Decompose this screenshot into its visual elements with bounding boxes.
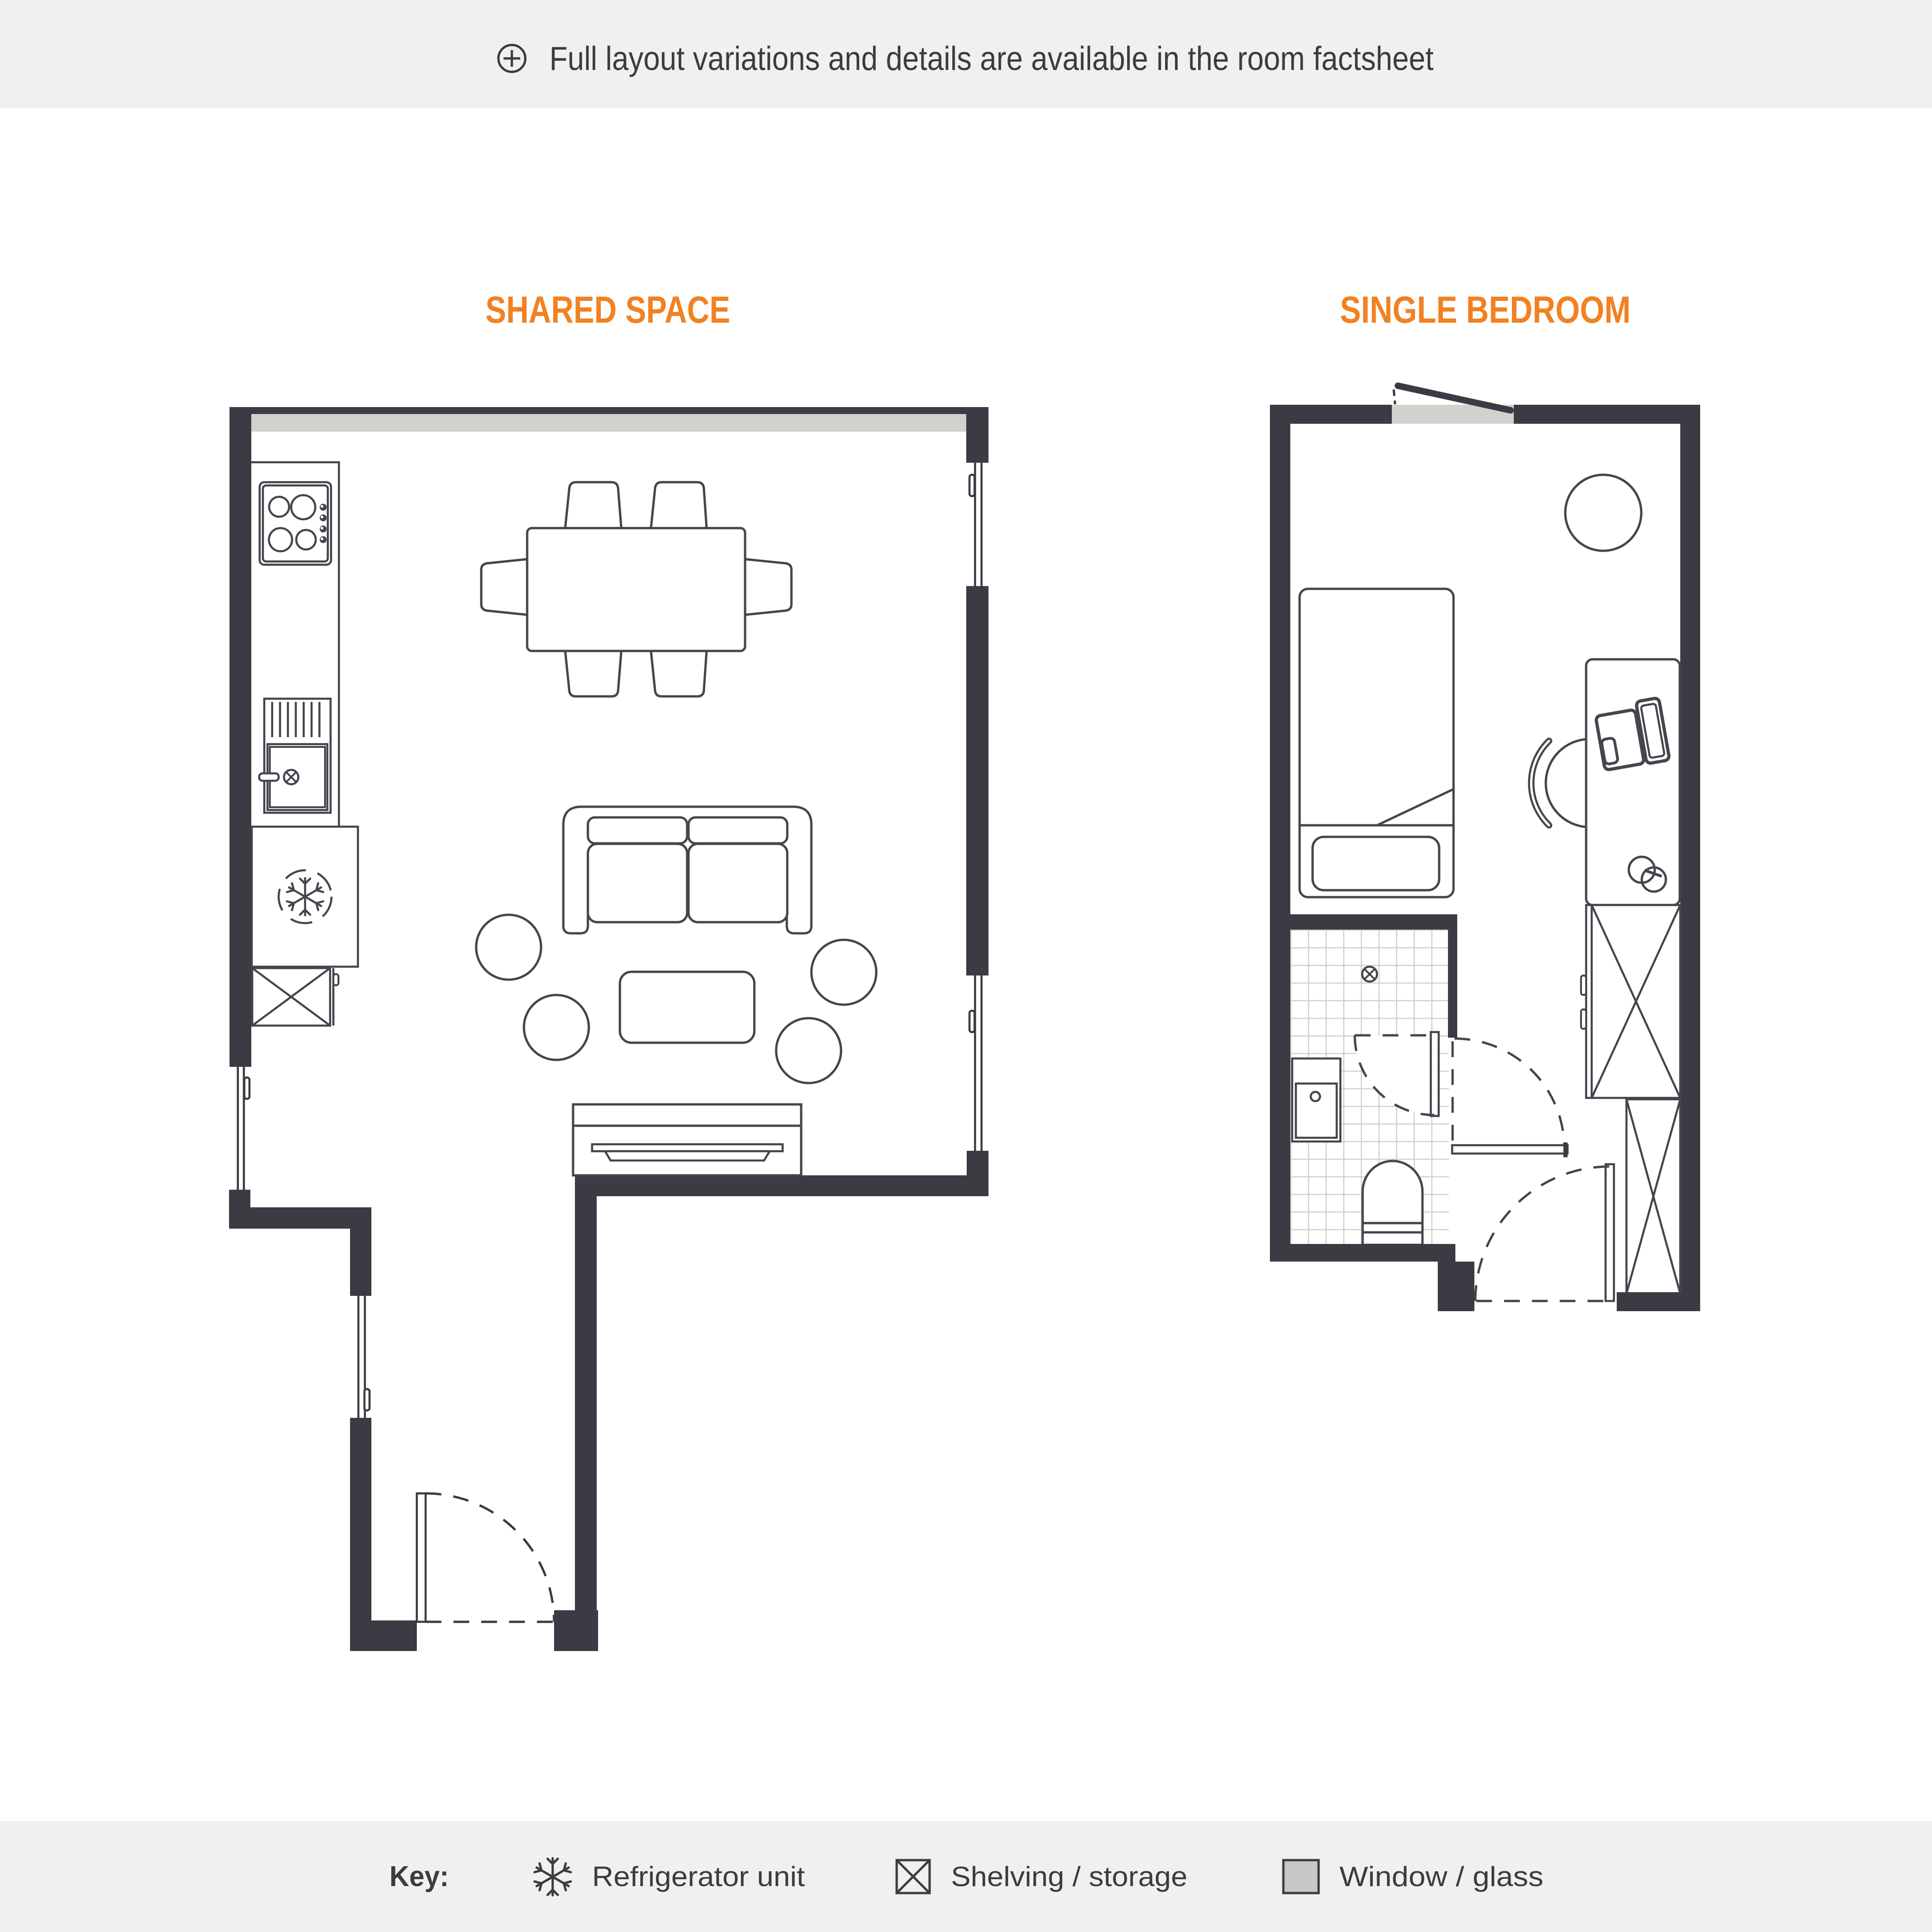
svg-text:Window / glass: Window / glass [1339, 1861, 1543, 1892]
svg-text:Key:: Key: [389, 1861, 449, 1893]
svg-text:Shelving / storage: Shelving / storage [951, 1861, 1187, 1892]
svg-text:SINGLE BEDROOM: SINGLE BEDROOM [1340, 289, 1631, 331]
svg-text:SHARED SPACE: SHARED SPACE [485, 289, 730, 331]
svg-text:Refrigerator unit: Refrigerator unit [592, 1861, 805, 1892]
svg-text:Full layout variations and det: Full layout variations and details are a… [549, 40, 1434, 77]
